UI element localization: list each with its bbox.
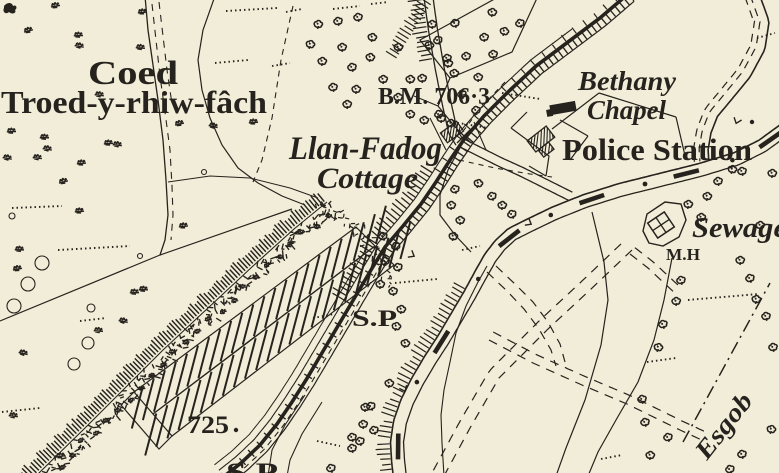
svg-text:Troed-y-rhiw-fâch: Troed-y-rhiw-fâch: [1, 84, 267, 120]
svg-text:S.P: S.P: [352, 306, 397, 331]
svg-text:725: 725: [187, 412, 229, 439]
svg-text:Sewage: Sewage: [692, 213, 779, 244]
svg-text:Cottage: Cottage: [317, 162, 418, 195]
svg-text:Chapel: Chapel: [587, 95, 666, 125]
svg-text:M.H: M.H: [666, 245, 700, 264]
svg-text:Bethany: Bethany: [577, 66, 677, 96]
svg-text:B.M. 706·3: B.M. 706·3: [378, 84, 490, 110]
svg-text:S.P: S.P: [226, 458, 278, 473]
svg-text:Police Station: Police Station: [562, 132, 752, 167]
